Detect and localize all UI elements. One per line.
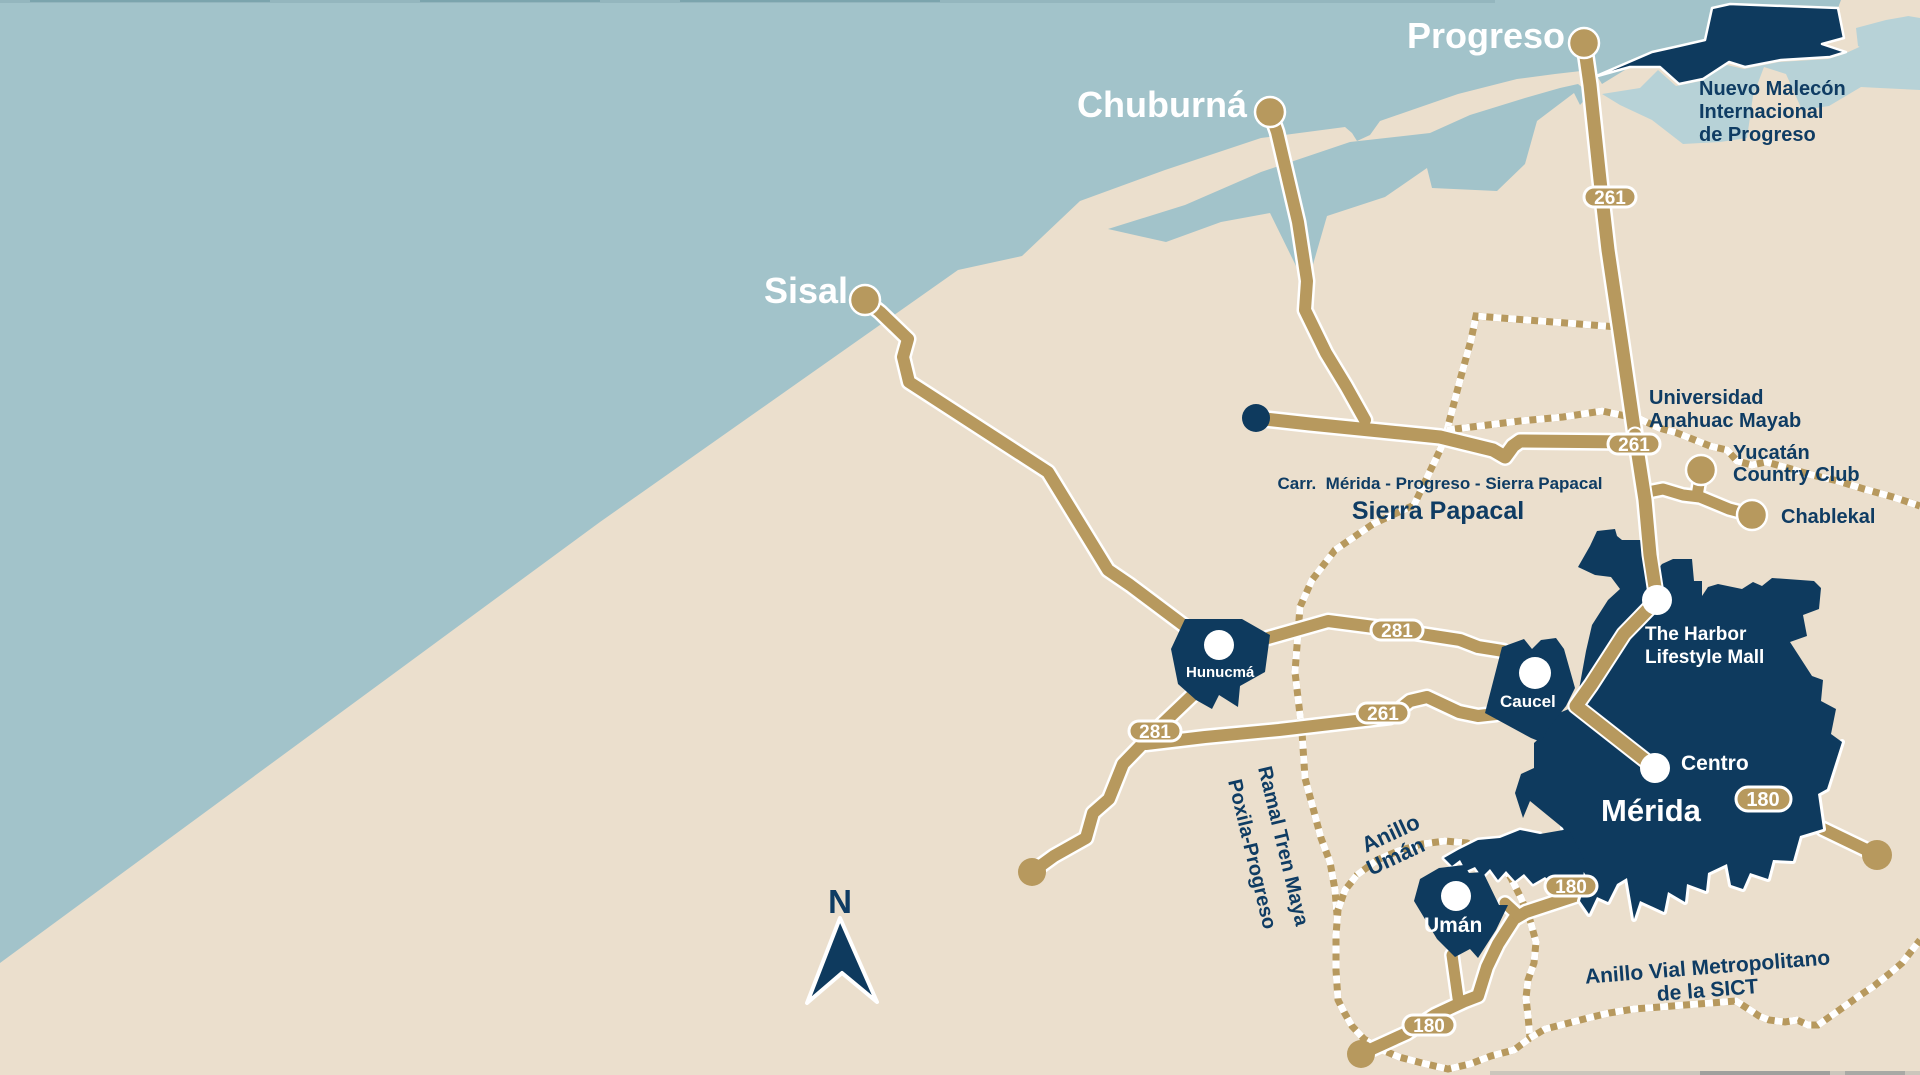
svg-text:281: 281 xyxy=(1139,722,1171,743)
svg-text:180: 180 xyxy=(1413,1016,1445,1037)
svg-text:Caucel: Caucel xyxy=(1500,692,1556,711)
svg-text:261: 261 xyxy=(1594,188,1626,209)
svg-text:Anahuac Mayab: Anahuac Mayab xyxy=(1649,410,1801,432)
svg-text:Chablekal: Chablekal xyxy=(1781,506,1875,528)
svg-text:Carr. Mérida - Progreso - Sie: Carr. Mérida - Progreso - Sierra Papacal xyxy=(1277,474,1602,493)
svg-text:Umán: Umán xyxy=(1424,914,1482,937)
svg-text:281: 281 xyxy=(1381,621,1413,642)
svg-text:Country Club: Country Club xyxy=(1733,464,1860,486)
svg-text:N: N xyxy=(828,883,852,920)
svg-text:Sierra Papacal: Sierra Papacal xyxy=(1352,497,1524,525)
svg-text:261: 261 xyxy=(1367,704,1399,725)
svg-text:Internacional: Internacional xyxy=(1699,101,1823,123)
svg-text:261: 261 xyxy=(1618,435,1650,456)
svg-text:Progreso: Progreso xyxy=(1407,15,1565,56)
svg-text:The Harbor: The Harbor xyxy=(1645,624,1747,645)
svg-text:de Progreso: de Progreso xyxy=(1699,124,1816,146)
svg-text:180: 180 xyxy=(1555,877,1587,898)
svg-text:Yucatán: Yucatán xyxy=(1733,442,1810,464)
svg-text:Hunucmá: Hunucmá xyxy=(1186,664,1255,681)
svg-text:Chuburná: Chuburná xyxy=(1077,84,1248,125)
svg-text:Sisal: Sisal xyxy=(764,270,848,311)
svg-text:Centro: Centro xyxy=(1681,752,1749,775)
svg-text:Lifestyle Mall: Lifestyle Mall xyxy=(1645,647,1764,668)
svg-text:Universidad: Universidad xyxy=(1649,387,1763,409)
svg-text:180: 180 xyxy=(1746,789,1779,811)
svg-text:Mérida: Mérida xyxy=(1601,793,1702,828)
svg-text:Nuevo Malecón: Nuevo Malecón xyxy=(1699,78,1846,100)
